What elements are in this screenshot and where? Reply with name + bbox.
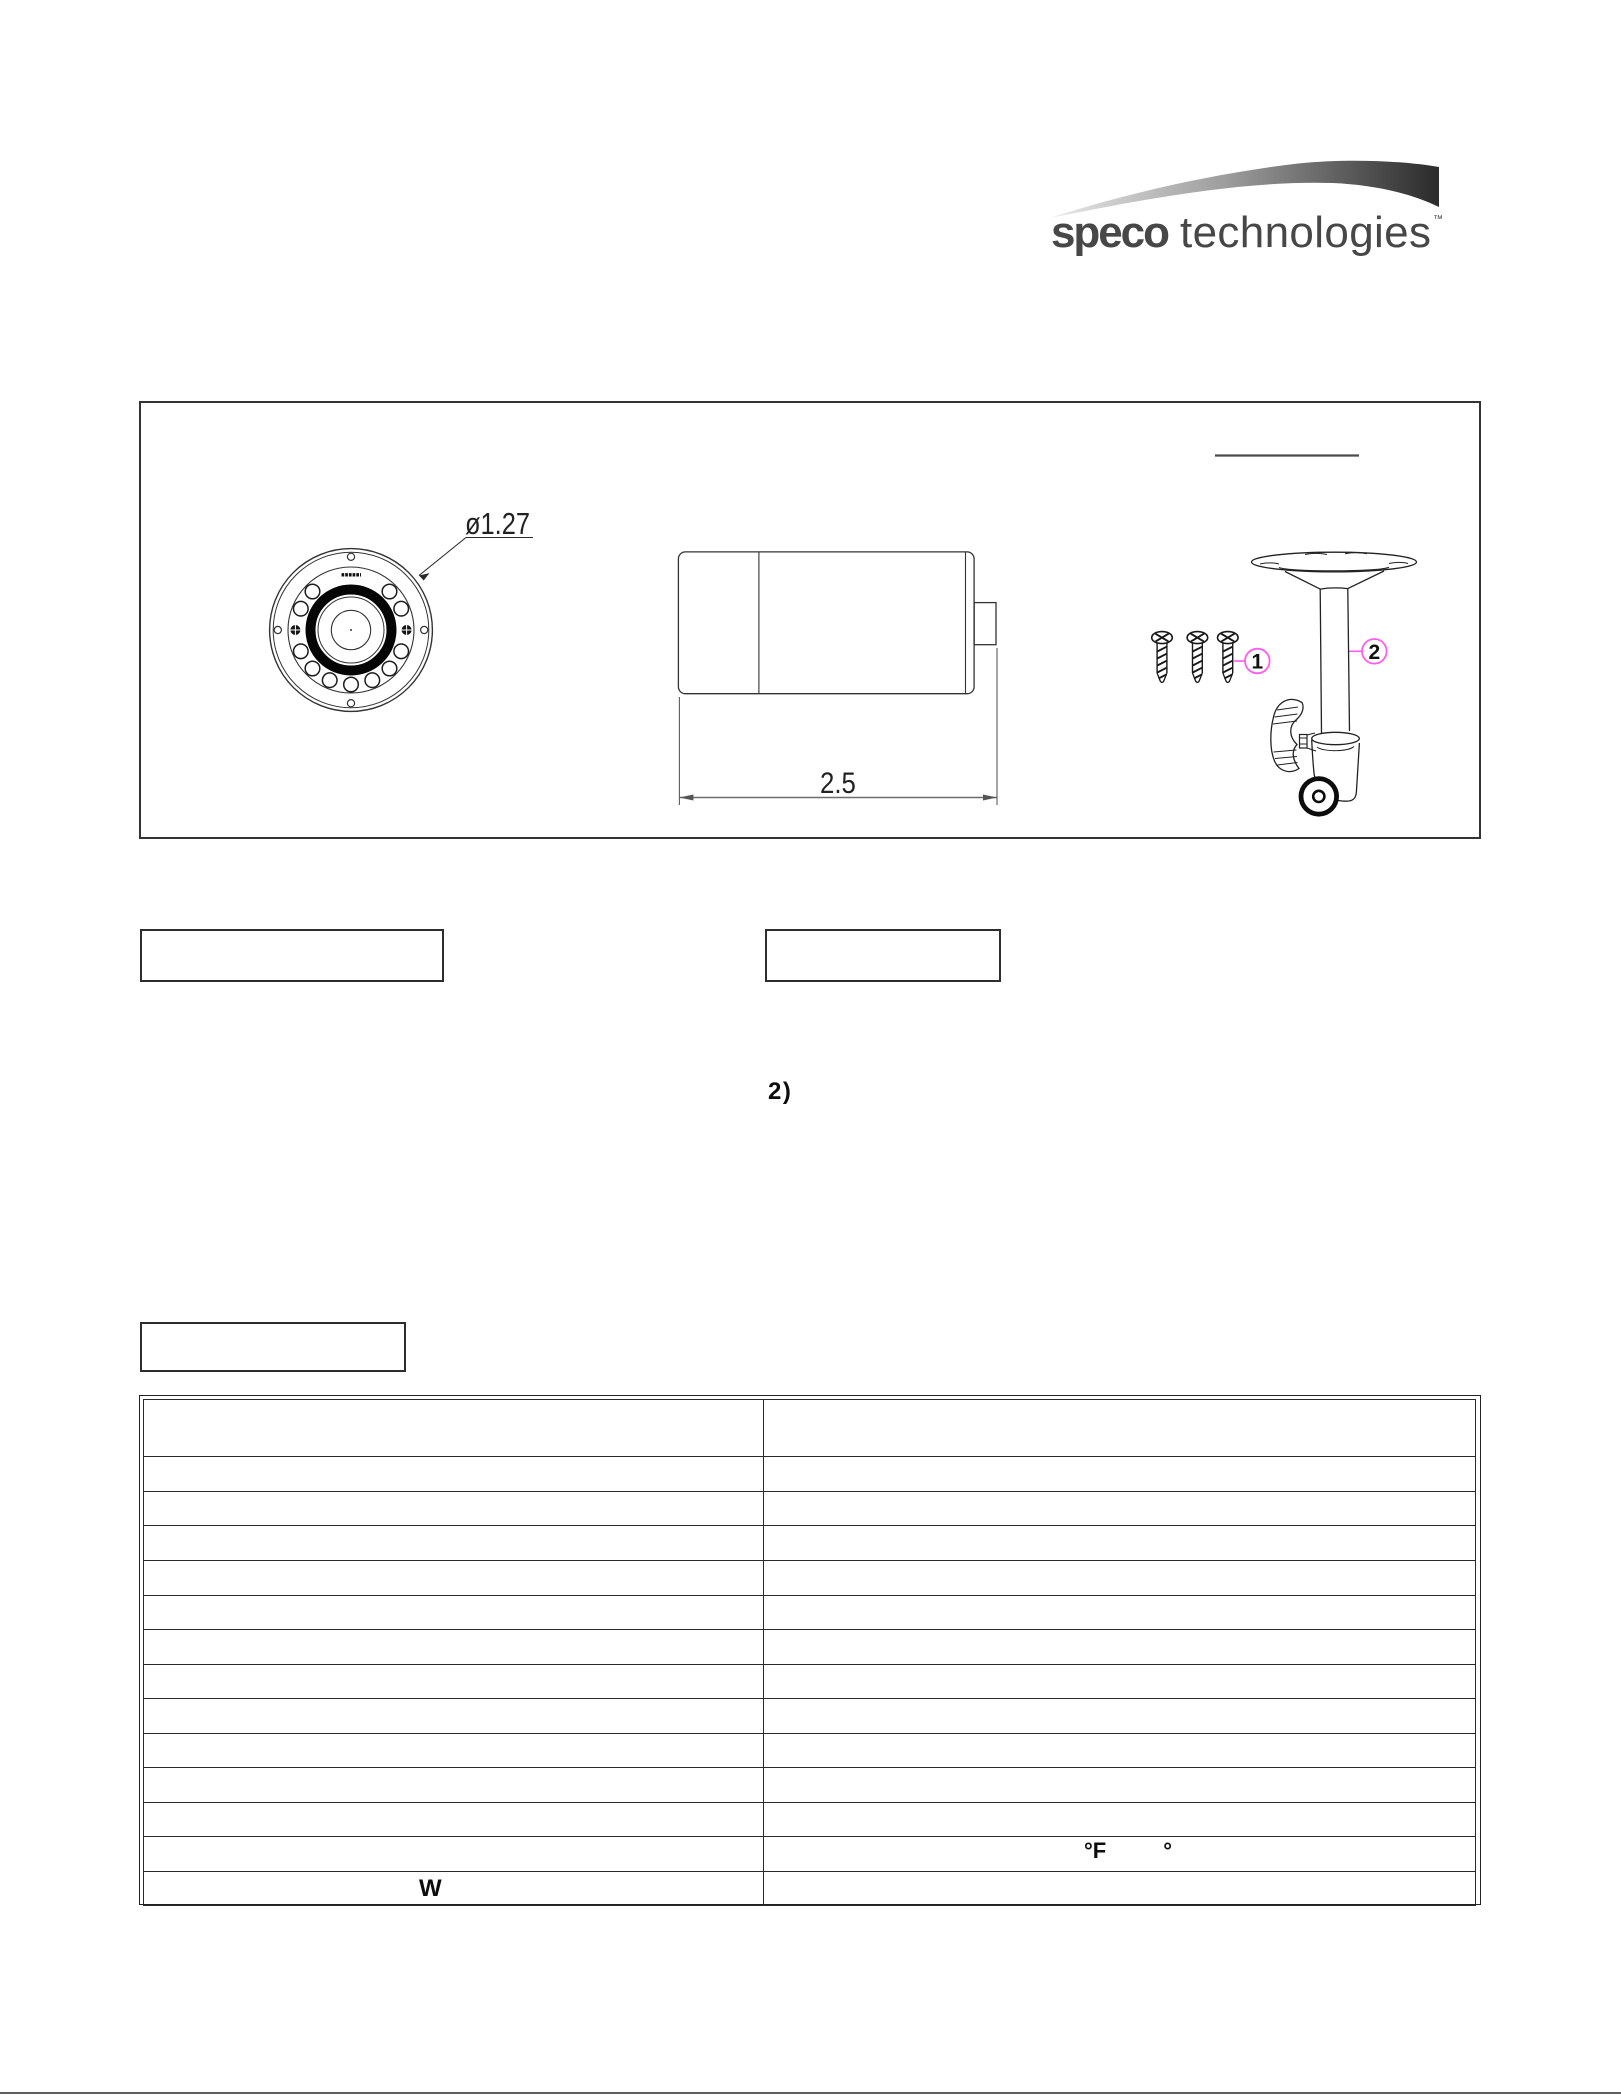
svg-text:1: 1 [1251, 651, 1263, 674]
svg-text:™: ™ [1433, 214, 1443, 225]
svg-text:ø1.27: ø1.27 [465, 507, 530, 542]
svg-text:technologies: technologies [1180, 208, 1431, 257]
svg-text:speco: speco [1051, 208, 1170, 257]
svg-text:2.5: 2.5 [820, 766, 856, 799]
svg-text:2: 2 [1368, 641, 1380, 664]
